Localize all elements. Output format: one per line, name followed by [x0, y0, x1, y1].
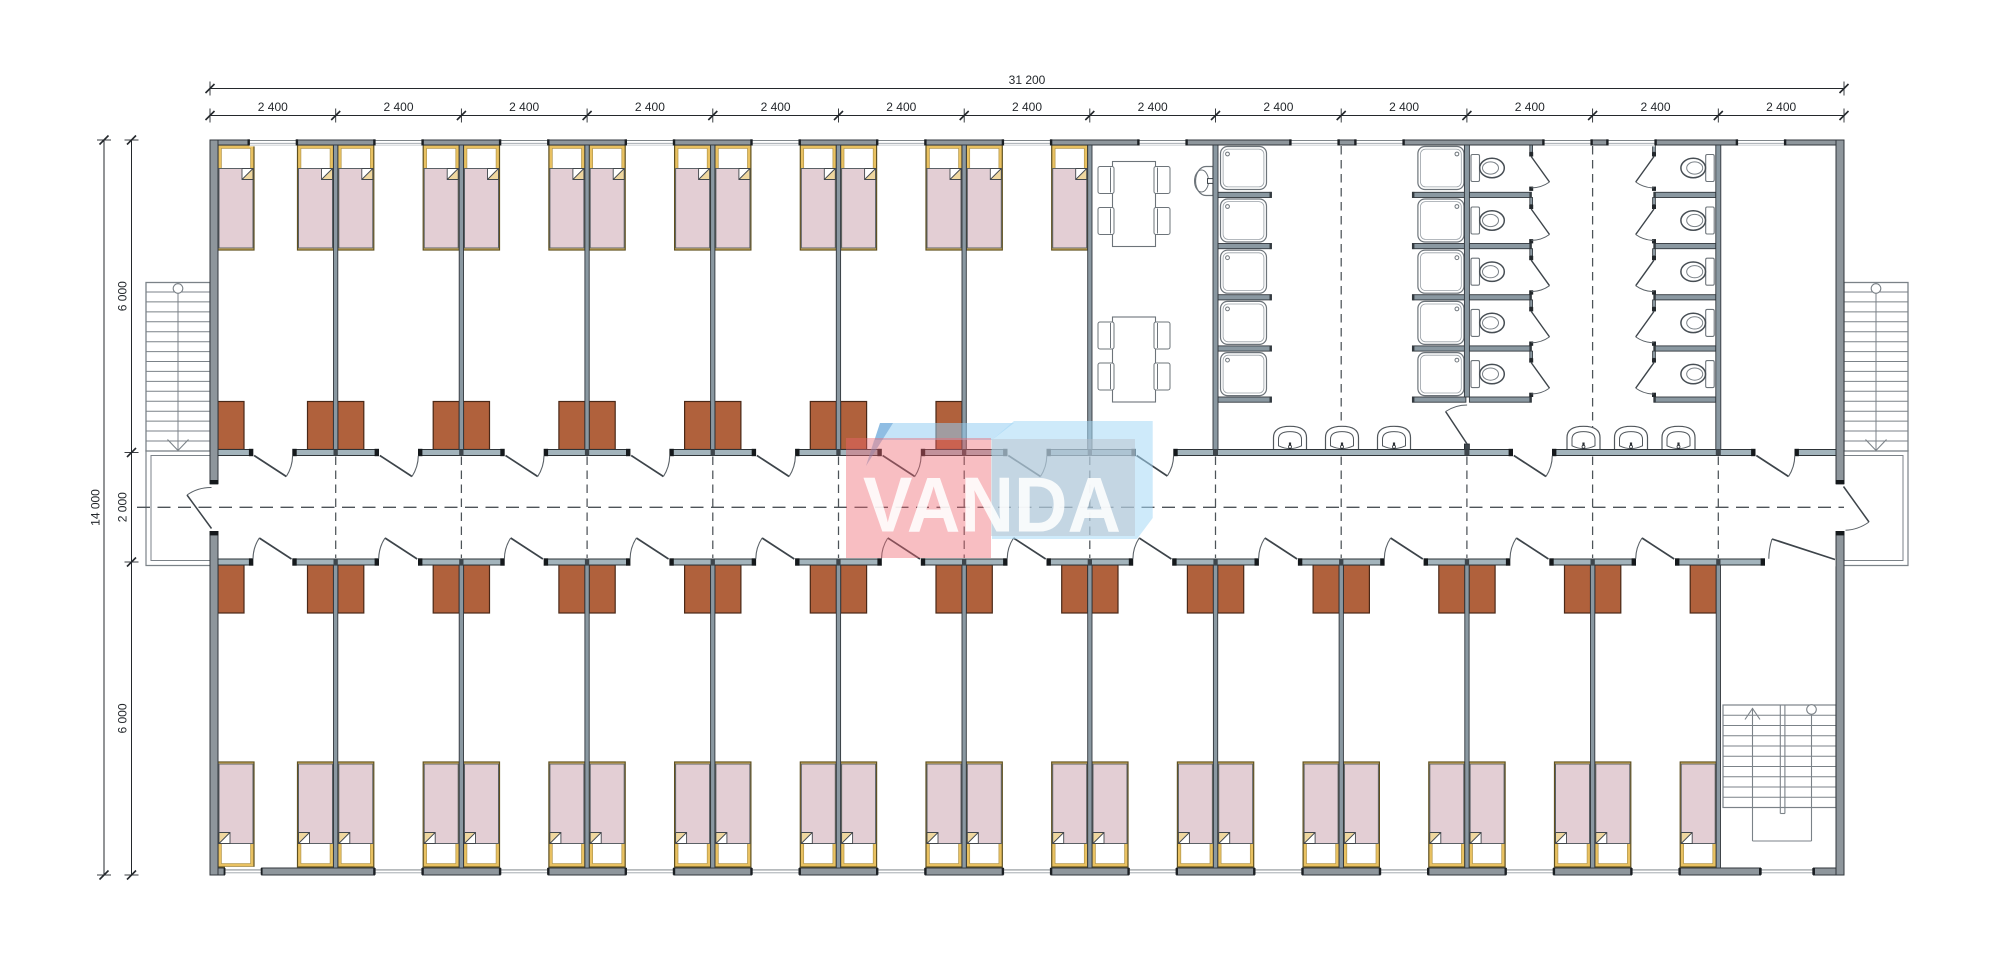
- svg-text:31 200: 31 200: [1009, 73, 1046, 87]
- svg-text:2 400: 2 400: [258, 100, 288, 114]
- svg-text:2 400: 2 400: [1766, 100, 1796, 114]
- svg-text:2 400: 2 400: [886, 100, 916, 114]
- svg-text:6 000: 6 000: [116, 281, 130, 311]
- svg-text:14 000: 14 000: [89, 489, 103, 526]
- svg-text:2 400: 2 400: [509, 100, 539, 114]
- svg-text:2 400: 2 400: [1389, 100, 1419, 114]
- svg-text:2 400: 2 400: [635, 100, 665, 114]
- svg-text:VANDA: VANDA: [863, 461, 1121, 549]
- svg-text:2 400: 2 400: [1138, 100, 1168, 114]
- svg-text:2 400: 2 400: [1012, 100, 1042, 114]
- svg-text:2 400: 2 400: [1263, 100, 1293, 114]
- svg-text:2 400: 2 400: [1640, 100, 1670, 114]
- svg-text:2 400: 2 400: [383, 100, 413, 114]
- svg-text:2 400: 2 400: [761, 100, 791, 114]
- svg-text:2 400: 2 400: [1515, 100, 1545, 114]
- svg-text:6 000: 6 000: [116, 703, 130, 733]
- svg-text:2 000: 2 000: [116, 492, 130, 522]
